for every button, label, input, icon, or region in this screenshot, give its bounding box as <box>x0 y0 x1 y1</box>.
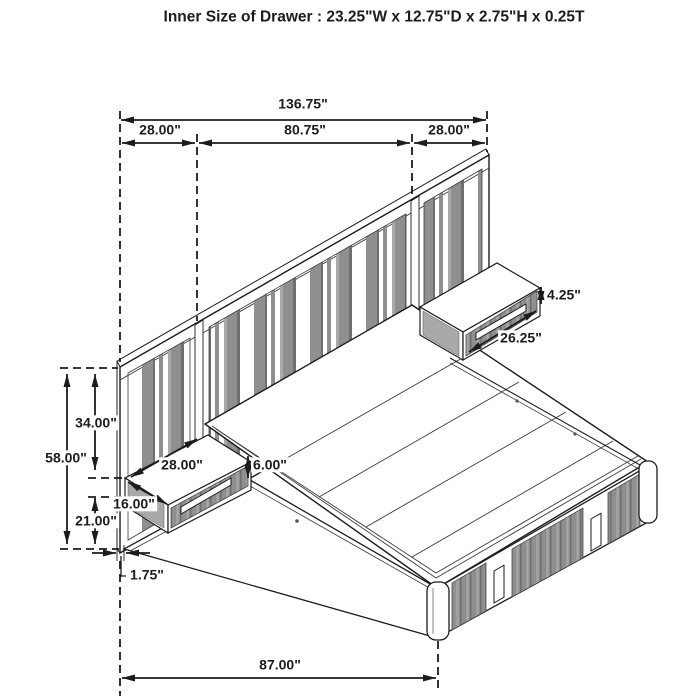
dim-label-drawer-face-height: 4.25" <box>545 287 583 302</box>
dim-label-center-width: 80.75" <box>282 122 328 137</box>
dim-label-shelf-height: 6.00" <box>251 457 289 472</box>
dim-label-right-wing-width: 28.00" <box>426 122 472 137</box>
dim-label-shelf-depth: 16.00" <box>111 496 157 511</box>
footboard-handle-slot <box>591 513 601 551</box>
bed-dimension-diagram: Inner Size of Drawer : 23.25"W x 12.75"D… <box>0 0 700 700</box>
corner-post-right <box>639 461 657 523</box>
dim-label-floor-to-shelf: 21.00" <box>73 513 119 528</box>
dim-label-total-width: 136.75" <box>276 96 329 111</box>
corner-post-left <box>427 582 449 640</box>
dim-label-top-to-shelf: 34.00" <box>73 415 119 430</box>
isometric-bed-drawing <box>0 0 700 700</box>
diagram-title: Inner Size of Drawer : 23.25"W x 12.75"D… <box>162 8 587 25</box>
dim-label-shelf-width: 28.00" <box>159 457 205 472</box>
dim-label-left-wing-width: 28.00" <box>137 122 183 137</box>
dim-label-panel-thickness: 1.75" <box>128 567 166 582</box>
dim-label-bed-length: 87.00" <box>257 657 303 672</box>
dim-label-drawer-front-width: 26.25" <box>498 330 544 345</box>
dim-label-overall-height: 58.00" <box>43 450 89 465</box>
footboard-handle-slot <box>494 565 504 603</box>
